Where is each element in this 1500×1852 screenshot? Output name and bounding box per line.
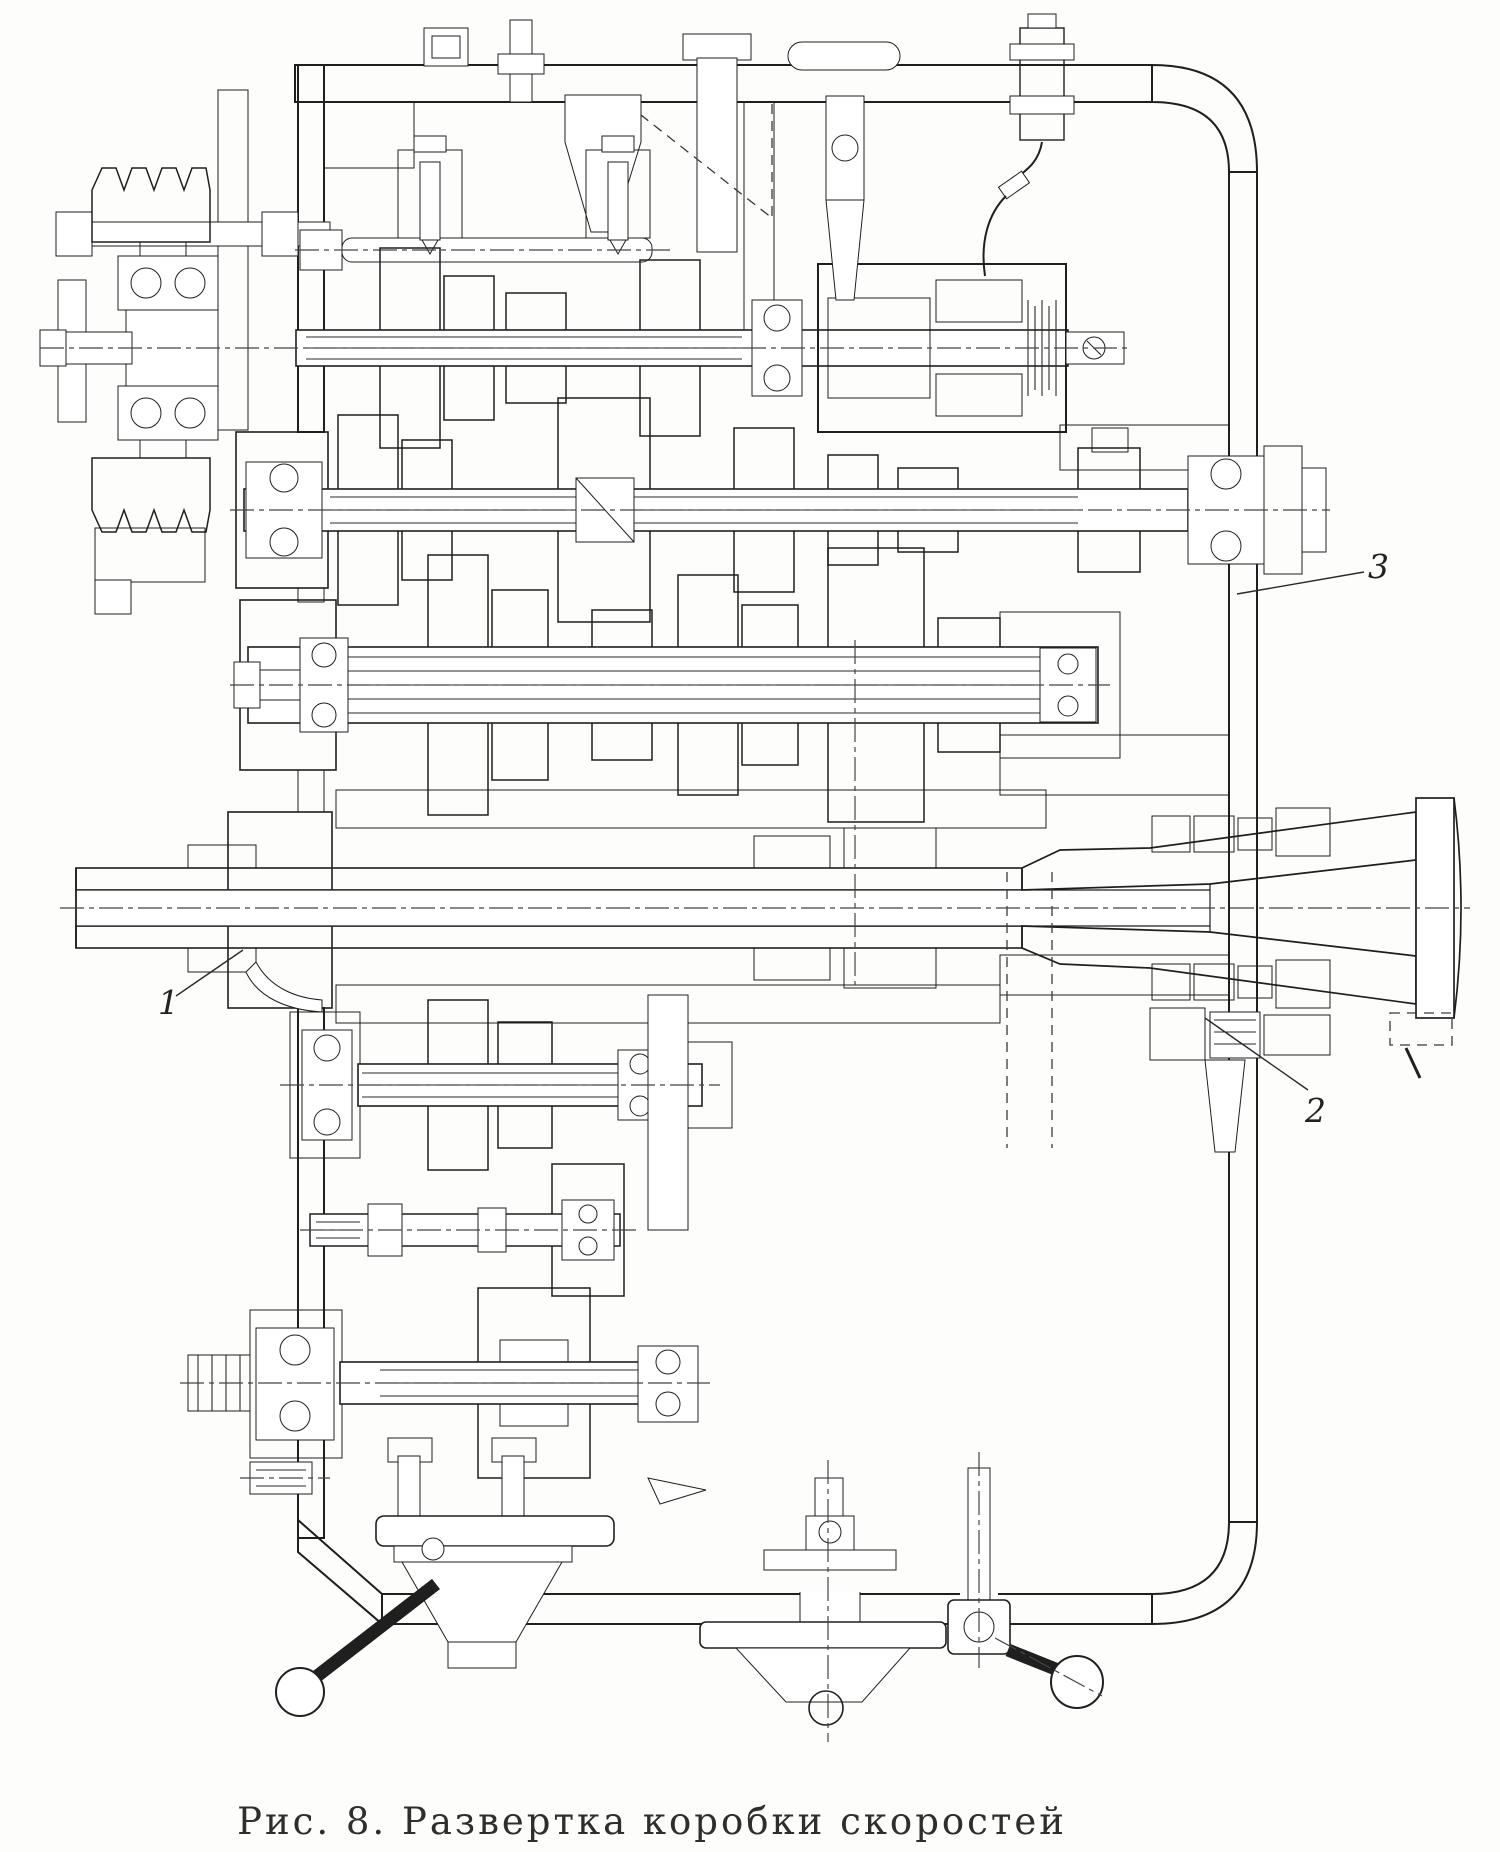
back-gear-bearing-right [638, 1346, 698, 1422]
shifter-lever-block [565, 95, 641, 232]
clutch-bracket [826, 96, 864, 300]
callout-1-label: 1 [158, 983, 179, 1022]
control-lever-right [948, 1452, 1103, 1708]
seal-lip [246, 962, 322, 1012]
gearbox-sectional-drawing: 1 2 3 Рис. 8. Развертка коробки скоросте… [0, 0, 1500, 1852]
spindle-seal-collar [188, 845, 256, 868]
figure-caption: Рис. 8. Развертка коробки скоростей [237, 1800, 1067, 1843]
bottom-cover-left [376, 1438, 614, 1668]
callout-2-label: 2 [1304, 1091, 1326, 1130]
back-gear-bearing-left [256, 1328, 334, 1440]
back-gear-shaft-assembly [180, 1288, 710, 1494]
lever-pointer-tip [648, 1478, 706, 1504]
top-cover-fittings [424, 14, 1074, 252]
clutch-coil-upper [936, 280, 1022, 322]
pulley-rim-bottom [92, 458, 210, 532]
scanned-figure-page: 1 2 3 Рис. 8. Развертка коробки скоросте… [0, 0, 1500, 1852]
pulley-hub [126, 300, 218, 400]
main-gear-shaft-assembly [230, 548, 1110, 822]
intermediate-shaft-assembly [230, 398, 1330, 622]
spindle-rear-adjusting-nuts [1150, 1008, 1330, 1152]
ball-handle-left [276, 1668, 324, 1716]
idler-shaft-assembly [300, 1164, 640, 1296]
clutch-wire [984, 142, 1042, 276]
bottom-cover-center [700, 1460, 946, 1742]
clutch-coil-lower [936, 374, 1022, 416]
callout-3-label: 3 [1368, 547, 1389, 586]
callout-1: 1 [158, 950, 243, 1022]
phantom-camlock-stud [1390, 1013, 1452, 1078]
lever-pivot [422, 1538, 444, 1560]
underdrive-shaft-assembly [280, 995, 732, 1230]
pulley-bearing-lower [118, 386, 218, 440]
shifter-shaft [697, 58, 737, 252]
pulley-bearing-upper [118, 256, 218, 310]
shifter-fork-plate [648, 995, 688, 1230]
oil-sight-glass [424, 28, 468, 66]
